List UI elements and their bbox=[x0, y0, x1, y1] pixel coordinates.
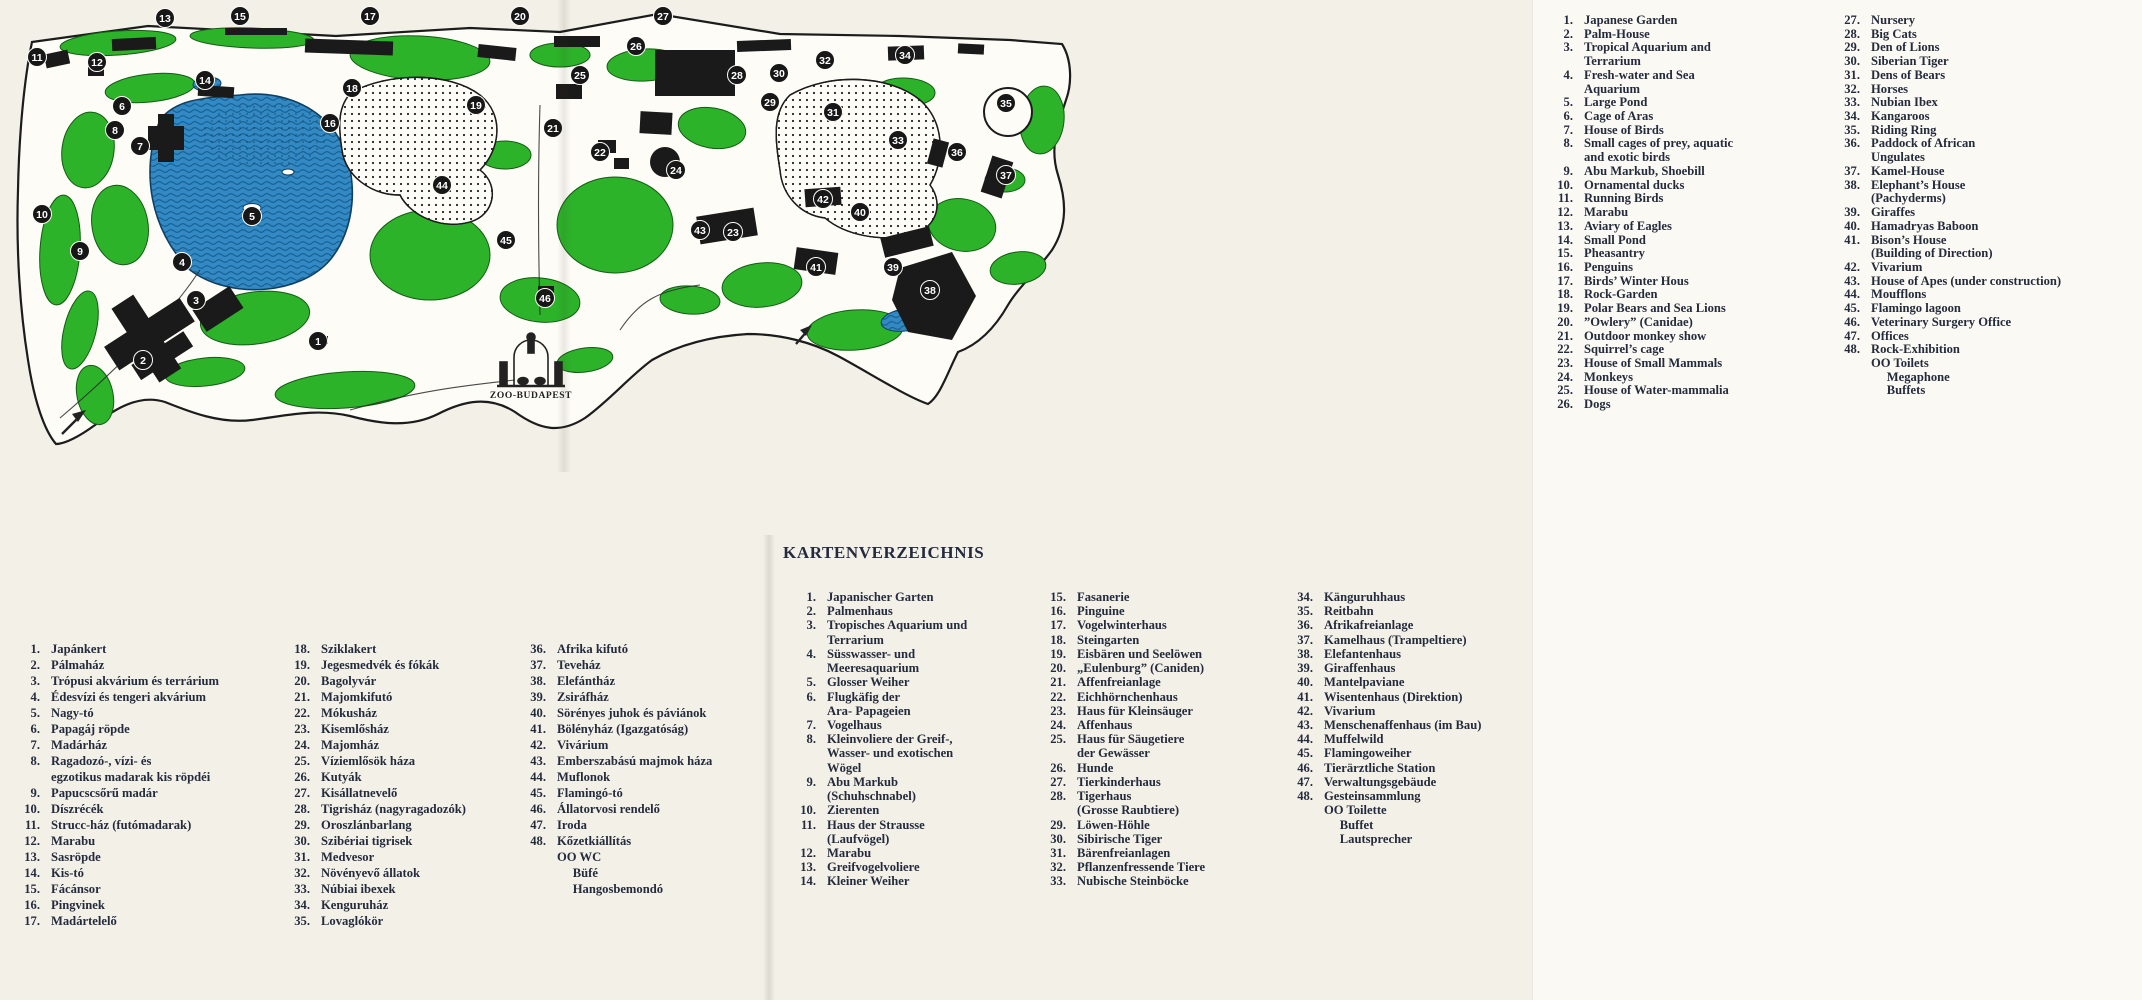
svg-text:22: 22 bbox=[594, 147, 606, 159]
legend-item-number: 16. bbox=[1038, 604, 1066, 618]
legend-item-number: 19. bbox=[1038, 647, 1066, 661]
legend-item: 18. Rock-Garden bbox=[1545, 288, 1821, 302]
legend-item: 15. Fácánsor bbox=[12, 882, 274, 898]
legend-item: 18. Sziklakert bbox=[282, 642, 514, 658]
map-marker-22: 22 bbox=[591, 143, 610, 162]
legend-item: 2. Palmenhaus bbox=[788, 604, 1026, 618]
legend-item-number: 36. bbox=[1285, 618, 1313, 632]
legend-item: 6. Flugkäfig der Ara- Papageien bbox=[788, 690, 1026, 718]
legend-item: 34. Kangaroos bbox=[1832, 110, 2132, 124]
legend-item: 42. Vivárium bbox=[518, 738, 760, 754]
map-marker-28: 28 bbox=[728, 66, 747, 85]
svg-text:28: 28 bbox=[731, 70, 743, 82]
legend-item: 39. Zsiráfház bbox=[518, 690, 760, 706]
legend-item-number: 23. bbox=[1038, 704, 1066, 718]
legend-item: 29. Löwen-Höhle bbox=[1038, 818, 1274, 832]
legend-item-number: 8. bbox=[788, 732, 816, 746]
legend-item-number: 34. bbox=[1285, 590, 1313, 604]
legend-item-number: 22. bbox=[1545, 343, 1573, 357]
legend-item: 25. Víziemlősök háza bbox=[282, 754, 514, 770]
legend-item: 9. Abu Markub (Schuhschnabel) bbox=[788, 775, 1026, 803]
legend-item: 15. Pheasantry bbox=[1545, 247, 1821, 261]
map-marker-11: 11 bbox=[28, 48, 47, 67]
legend-item-label: Kisállatnevelő bbox=[321, 786, 397, 802]
svg-text:21: 21 bbox=[547, 123, 559, 135]
legend-item-label: Big Cats bbox=[1871, 28, 1917, 42]
map-marker-30: 30 bbox=[770, 64, 789, 83]
legend-item-label: Pflanzenfressende Tiere bbox=[1077, 860, 1205, 874]
svg-text:33: 33 bbox=[892, 135, 904, 147]
legend-item-label: Cage of Aras bbox=[1584, 110, 1653, 124]
map-marker-26: 26 bbox=[627, 37, 646, 56]
legend-item-label: House of Small Mammals bbox=[1584, 357, 1722, 371]
legend-item-label: Kőzetkiállítás OO WC Büfé Hangosbemondó bbox=[557, 834, 663, 898]
legend-item: 36. Paddock of African Ungulates bbox=[1832, 137, 2132, 164]
legend-item-number: 26. bbox=[1038, 761, 1066, 775]
legend-item-label: Flamingoweiher bbox=[1324, 746, 1411, 760]
legend-item-number: 11. bbox=[788, 818, 816, 832]
legend-item-number: 20. bbox=[1545, 316, 1573, 330]
legend-item: 24. Monkeys bbox=[1545, 371, 1821, 385]
legend-item-number: 16. bbox=[12, 898, 40, 914]
legend-item-number: 7. bbox=[1545, 124, 1573, 138]
map-marker-12: 12 bbox=[88, 53, 107, 72]
legend-item: 30. Sibirische Tiger bbox=[1038, 832, 1274, 846]
legend-item: 23. Kisemlősház bbox=[282, 722, 514, 738]
legend-item-label: Flugkäfig der Ara- Papageien bbox=[827, 690, 911, 718]
legend-item: 31. Bärenfreianlagen bbox=[1038, 846, 1274, 860]
legend-item-label: Kamelhaus (Trampeltiere) bbox=[1324, 633, 1467, 647]
legend-item-label: Riding Ring bbox=[1871, 124, 1936, 138]
legend-item: 19. Jegesmedvék és fókák bbox=[282, 658, 514, 674]
svg-text:34: 34 bbox=[899, 50, 911, 62]
legend-item-label: Oroszlánbarlang bbox=[321, 818, 412, 834]
legend-de-col2: 15. Fasanerie 16. Pinguine 17. Vogelwint… bbox=[1038, 590, 1274, 889]
legend-item-number: 6. bbox=[1545, 110, 1573, 124]
legend-item: 29. Oroszlánbarlang bbox=[282, 818, 514, 834]
legend-item: 37. Kamel-House bbox=[1832, 165, 2132, 179]
legend-item-number: 28. bbox=[1832, 28, 1860, 42]
legend-item-number: 31. bbox=[1832, 69, 1860, 83]
svg-text:30: 30 bbox=[773, 68, 785, 80]
legend-item-label: Elephant’s House (Pachyderms) bbox=[1871, 179, 1965, 206]
map-marker-37: 37 bbox=[997, 166, 1016, 185]
legend-item-number: 40. bbox=[1285, 675, 1313, 689]
legend-item-number: 1. bbox=[788, 590, 816, 604]
legend-item-label: Fácánsor bbox=[51, 882, 101, 898]
map-marker-27: 27 bbox=[654, 7, 673, 26]
legend-item-label: Papagáj röpde bbox=[51, 722, 130, 738]
legend-item: 7. Madárház bbox=[12, 738, 274, 754]
map-marker-16: 16 bbox=[321, 114, 340, 133]
legend-item-number: 44. bbox=[518, 770, 546, 786]
legend-item-label: Ragadozó-, vízi- és egzotikus madarak ki… bbox=[51, 754, 210, 786]
map-marker-25: 25 bbox=[571, 66, 590, 85]
legend-item-number: 26. bbox=[282, 770, 310, 786]
legend-item-number: 15. bbox=[1038, 590, 1066, 604]
legend-item-number: 9. bbox=[1545, 165, 1573, 179]
legend-item-label: Majomkifutó bbox=[321, 690, 392, 706]
legend-item-number: 46. bbox=[1832, 316, 1860, 330]
legend-item-label: House of Water-mammalia bbox=[1584, 384, 1729, 398]
legend-item-number: 29. bbox=[1832, 41, 1860, 55]
legend-item-label: Víziemlősök háza bbox=[321, 754, 415, 770]
svg-text:35: 35 bbox=[1000, 98, 1012, 110]
legend-item-number: 12. bbox=[1545, 206, 1573, 220]
legend-item-number: 12. bbox=[788, 846, 816, 860]
legend-item-number: 30. bbox=[1038, 832, 1066, 846]
svg-text:38: 38 bbox=[924, 285, 936, 297]
legend-item-label: Pingvinek bbox=[51, 898, 105, 914]
legend-item-number: 6. bbox=[12, 722, 40, 738]
svg-text:11: 11 bbox=[31, 52, 42, 64]
legend-item: 38. Elefantenhaus bbox=[1285, 647, 1531, 661]
map-marker-40: 40 bbox=[851, 203, 870, 222]
legend-item: 1. Japanese Garden bbox=[1545, 14, 1821, 28]
legend-item-label: Tigrisház (nagyragadozók) bbox=[321, 802, 466, 818]
map-marker-9: 9 bbox=[71, 242, 90, 261]
legend-item: 12. Marabu bbox=[1545, 206, 1821, 220]
legend-item-number: 32. bbox=[1038, 860, 1066, 874]
page-fold-crease bbox=[763, 535, 775, 1000]
legend-item: 30. Siberian Tiger bbox=[1832, 55, 2132, 69]
legend-item-number: 4. bbox=[788, 647, 816, 661]
map-marker-7: 7 bbox=[131, 137, 150, 156]
legend-item: 7. Vogelhaus bbox=[788, 718, 1026, 732]
svg-text:40: 40 bbox=[854, 207, 866, 219]
legend-item-number: 21. bbox=[1545, 330, 1573, 344]
legend-item-number: 24. bbox=[282, 738, 310, 754]
svg-text:8: 8 bbox=[112, 125, 118, 137]
legend-item-number: 15. bbox=[1545, 247, 1573, 261]
legend-item: 43. House of Apes (under construction) bbox=[1832, 275, 2132, 289]
legend-item: 23. House of Small Mammals bbox=[1545, 357, 1821, 371]
legend-item: 33. Núbiai ibexek bbox=[282, 882, 514, 898]
legend-item-number: 34. bbox=[282, 898, 310, 914]
legend-item-label: Giraffenhaus bbox=[1324, 661, 1395, 675]
legend-hu-col2: 18. Sziklakert 19. Jegesmedvék és fókák … bbox=[282, 642, 514, 930]
legend-item: 14. Kis-tó bbox=[12, 866, 274, 882]
legend-item-label: Vivárium bbox=[557, 738, 608, 754]
legend-item: 19. Polar Bears and Sea Lions bbox=[1545, 302, 1821, 316]
svg-text:7: 7 bbox=[137, 141, 143, 153]
legend-item: 5. Nagy-tó bbox=[12, 706, 274, 722]
legend-item: 42. Vivarium bbox=[1832, 261, 2132, 275]
legend-item-number: 26. bbox=[1545, 398, 1573, 412]
legend-item: 44. Muffelwild bbox=[1285, 732, 1531, 746]
map-marker-36: 36 bbox=[948, 143, 967, 162]
legend-en-col2: 27. Nursery 28. Big Cats 29. Den of Lion… bbox=[1832, 14, 2132, 398]
legend-item-label: Känguruhhaus bbox=[1324, 590, 1405, 604]
legend-item: 4. Édesvízi és tengeri akvárium bbox=[12, 690, 274, 706]
map-marker-21: 21 bbox=[544, 119, 563, 138]
legend-item-number: 11. bbox=[12, 818, 40, 834]
svg-text:9: 9 bbox=[77, 246, 83, 258]
svg-text:32: 32 bbox=[819, 55, 831, 67]
legend-item: 20. Bagolyvár bbox=[282, 674, 514, 690]
legend-item: 37. Kamelhaus (Trampeltiere) bbox=[1285, 633, 1531, 647]
map-marker-33: 33 bbox=[889, 131, 908, 150]
legend-item-number: 43. bbox=[1285, 718, 1313, 732]
svg-text:25: 25 bbox=[574, 70, 586, 82]
legend-item-label: Muflonok bbox=[557, 770, 610, 786]
legend-item-number: 27. bbox=[282, 786, 310, 802]
map-marker-4: 4 bbox=[173, 253, 192, 272]
map-marker-18: 18 bbox=[343, 79, 362, 98]
legend-item-label: Marabu bbox=[827, 846, 871, 860]
legend-item-number: 39. bbox=[1832, 206, 1860, 220]
legend-item-number: 22. bbox=[282, 706, 310, 722]
map-marker-24: 24 bbox=[667, 161, 686, 180]
legend-item-number: 23. bbox=[1545, 357, 1573, 371]
legend-item-number: 27. bbox=[1038, 775, 1066, 789]
legend-item: 20. ”Owlery” (Canidae) bbox=[1545, 316, 1821, 330]
legend-item-number: 42. bbox=[1285, 704, 1313, 718]
legend-item-number: 30. bbox=[1832, 55, 1860, 69]
legend-item-number: 47. bbox=[518, 818, 546, 834]
svg-text:42: 42 bbox=[817, 194, 829, 206]
legend-item-label: Szibériai tigrisek bbox=[321, 834, 412, 850]
legend-item-label: House of Apes (under construction) bbox=[1871, 275, 2061, 289]
legend-item-label: Fresh-water and Sea Aquarium bbox=[1584, 69, 1695, 96]
legend-item-number: 21. bbox=[1038, 675, 1066, 689]
legend-item: 46. Állatorvosi rendelő bbox=[518, 802, 760, 818]
legend-item-label: Bagolyvár bbox=[321, 674, 376, 690]
legend-item-label: Eichhörnchenhaus bbox=[1077, 690, 1178, 704]
legend-item-number: 34. bbox=[1832, 110, 1860, 124]
legend-item: 13. Sasröpde bbox=[12, 850, 274, 866]
map-marker-35: 35 bbox=[997, 94, 1016, 113]
legend-item: 41. Wisentenhaus (Direktion) bbox=[1285, 690, 1531, 704]
scanned-zoo-map-page: ZOO-BUDAPEST 131517202726252830323435293… bbox=[0, 0, 2142, 1000]
legend-hu-col1: 1. Japánkert 2. Pálmaház 3. Trópusi akvá… bbox=[12, 642, 274, 930]
map-marker-38: 38 bbox=[921, 281, 940, 300]
legend-item-label: Nubische Steinböcke bbox=[1077, 874, 1189, 888]
legend-item-label: Wisentenhaus (Direktion) bbox=[1324, 690, 1462, 704]
legend-item: 3. Tropisches Aquarium und Terrarium bbox=[788, 618, 1026, 646]
legend-item-label: Süsswasser- und Meeresaquarium bbox=[827, 647, 919, 675]
legend-item-label: Édesvízi és tengeri akvárium bbox=[51, 690, 206, 706]
legend-item-label: Flamingó-tó bbox=[557, 786, 623, 802]
map-marker-31: 31 bbox=[824, 103, 843, 122]
legend-item-number: 7. bbox=[12, 738, 40, 754]
legend-item-label: Vogelwinterhaus bbox=[1077, 618, 1167, 632]
svg-text:39: 39 bbox=[887, 262, 899, 274]
svg-text:14: 14 bbox=[199, 75, 211, 87]
svg-text:29: 29 bbox=[764, 97, 776, 109]
legend-item: 32. Pflanzenfressende Tiere bbox=[1038, 860, 1274, 874]
map-marker-2: 2 bbox=[134, 351, 153, 370]
legend-item-label: Reitbahn bbox=[1324, 604, 1374, 618]
legend-item-label: Pálmaház bbox=[51, 658, 104, 674]
legend-item-label: House of Birds bbox=[1584, 124, 1664, 138]
svg-text:45: 45 bbox=[500, 235, 512, 247]
legend-item-number: 42. bbox=[1832, 261, 1860, 275]
legend-item: 25. Haus für Säugetiere der Gewässer bbox=[1038, 732, 1274, 760]
map-marker-8: 8 bbox=[106, 121, 125, 140]
map-logo: ZOO-BUDAPEST bbox=[490, 391, 572, 401]
legend-item-label: Kleinvoliere der Greif-, Wasser- und exo… bbox=[827, 732, 953, 775]
legend-item-label: Haus für Kleinsäuger bbox=[1077, 704, 1193, 718]
legend-item-number: 10. bbox=[1545, 179, 1573, 193]
legend-item: 27. Nursery bbox=[1832, 14, 2132, 28]
legend-item-number: 14. bbox=[12, 866, 40, 882]
legend-item-number: 23. bbox=[282, 722, 310, 738]
legend-de-col1: 1. Japanischer Garten 2. Palmenhaus 3. T… bbox=[788, 590, 1026, 889]
legend-item-number: 1. bbox=[12, 642, 40, 658]
legend-item: 47. Iroda bbox=[518, 818, 760, 834]
legend-item-number: 31. bbox=[1038, 846, 1066, 860]
map-marker-10: 10 bbox=[33, 205, 52, 224]
svg-text:17: 17 bbox=[364, 11, 376, 23]
legend-item-label: Rock-Garden bbox=[1584, 288, 1657, 302]
legend-item-number: 17. bbox=[1545, 275, 1573, 289]
legend-item-number: 1. bbox=[1545, 14, 1573, 28]
legend-item: 38. Elefántház bbox=[518, 674, 760, 690]
legend-item-number: 20. bbox=[282, 674, 310, 690]
legend-item-number: 45. bbox=[1285, 746, 1313, 760]
legend-item-label: Hunde bbox=[1077, 761, 1113, 775]
legend-item: 9. Abu Markub, Shoebill bbox=[1545, 165, 1821, 179]
legend-item-label: Tigerhaus (Grosse Raubtiere) bbox=[1077, 789, 1179, 817]
legend-item: 20. „Eulenburg” (Caniden) bbox=[1038, 661, 1274, 675]
legend-item-label: Mókusház bbox=[321, 706, 377, 722]
legend-item-label: Verwaltungsgebäude bbox=[1324, 775, 1436, 789]
legend-item-number: 8. bbox=[12, 754, 40, 770]
legend-item-number: 15. bbox=[12, 882, 40, 898]
legend-item: 7. House of Birds bbox=[1545, 124, 1821, 138]
legend-item-number: 48. bbox=[1832, 343, 1860, 357]
legend-item-label: Marabu bbox=[51, 834, 95, 850]
svg-text:23: 23 bbox=[727, 227, 739, 239]
legend-item-label: Moufflons bbox=[1871, 288, 1926, 302]
svg-text:24: 24 bbox=[670, 165, 682, 177]
legend-item-label: Abu Markub, Shoebill bbox=[1584, 165, 1705, 179]
legend-item: 48. Gesteinsammlung OO Toilette Buffet L… bbox=[1285, 789, 1531, 846]
legend-item-label: ”Owlery” (Canidae) bbox=[1584, 316, 1693, 330]
legend-item-label: Pheasantry bbox=[1584, 247, 1645, 261]
legend-item-label: Affenfreianlage bbox=[1077, 675, 1161, 689]
legend-item-number: 9. bbox=[12, 786, 40, 802]
legend-item-label: Squirrel’s cage bbox=[1584, 343, 1664, 357]
legend-item-label: Rock-Exhibition OO Toilets Megaphone Buf… bbox=[1871, 343, 1960, 398]
legend-item-number: 2. bbox=[1545, 28, 1573, 42]
map-marker-1: 1 bbox=[309, 332, 328, 351]
legend-item-label: Nubian Ibex bbox=[1871, 96, 1938, 110]
legend-item-number: 17. bbox=[1038, 618, 1066, 632]
legend-item: 16. Pinguine bbox=[1038, 604, 1274, 618]
legend-item: 3. Trópusi akvárium és terrárium bbox=[12, 674, 274, 690]
legend-de-col3: 34. Känguruhhaus 35. Reitbahn 36. Afrika… bbox=[1285, 590, 1531, 846]
legend-item: 33. Nubische Steinböcke bbox=[1038, 874, 1274, 888]
legend-item: 6. Cage of Aras bbox=[1545, 110, 1821, 124]
map-marker-45: 45 bbox=[497, 231, 516, 250]
legend-item: 46. Tierärztliche Station bbox=[1285, 761, 1531, 775]
legend-item-number: 19. bbox=[1545, 302, 1573, 316]
legend-item-label: Hamadryas Baboon bbox=[1871, 220, 1978, 234]
legend-item: 26. Hunde bbox=[1038, 761, 1274, 775]
map-marker-23: 23 bbox=[724, 223, 743, 242]
legend-item-label: Polar Bears and Sea Lions bbox=[1584, 302, 1726, 316]
pond-texture bbox=[200, 103, 330, 167]
legend-item: 13. Greifvogelvoliere bbox=[788, 860, 1026, 874]
legend-item: 2. Palm-House bbox=[1545, 28, 1821, 42]
legend-item: 41. Bölényház (Igazgatóság) bbox=[518, 722, 760, 738]
map-marker-3: 3 bbox=[187, 291, 206, 310]
legend-item: 5. Large Pond bbox=[1545, 96, 1821, 110]
legend-item-number: 32. bbox=[1832, 83, 1860, 97]
legend-item-number: 17. bbox=[12, 914, 40, 930]
svg-text:19: 19 bbox=[470, 100, 482, 112]
legend-item-label: Haus für Säugetiere der Gewässer bbox=[1077, 732, 1184, 760]
legend-item-number: 7. bbox=[788, 718, 816, 732]
legend-item-label: Paddock of African Ungulates bbox=[1871, 137, 1975, 164]
legend-item-label: Nursery bbox=[1871, 14, 1915, 28]
legend-item: 43. Emberszabású majmok háza bbox=[518, 754, 760, 770]
legend-item: 3. Tropical Aquarium and Terrarium bbox=[1545, 41, 1821, 68]
legend-item-number: 38. bbox=[1832, 179, 1860, 193]
legend-item-label: Ornamental ducks bbox=[1584, 179, 1684, 193]
legend-item: 15. Fasanerie bbox=[1038, 590, 1274, 604]
legend-item: 45. Flamingo lagoon bbox=[1832, 302, 2132, 316]
legend-item-label: Tropical Aquarium and Terrarium bbox=[1584, 41, 1711, 68]
legend-item: 40. Mantelpaviane bbox=[1285, 675, 1531, 689]
legend-item: 17. Birds’ Winter Hous bbox=[1545, 275, 1821, 289]
legend-item-number: 9. bbox=[788, 775, 816, 789]
legend-item: 41. Bison’s House (Building of Direction… bbox=[1832, 234, 2132, 261]
legend-item: 11. Strucc-ház (futómadarak) bbox=[12, 818, 274, 834]
legend-item: 43. Menschenaffenhaus (im Bau) bbox=[1285, 718, 1531, 732]
legend-item-number: 41. bbox=[518, 722, 546, 738]
legend-item-label: Növényevő állatok bbox=[321, 866, 420, 882]
legend-item: 32. Növényevő állatok bbox=[282, 866, 514, 882]
legend-item-label: Madártelelő bbox=[51, 914, 117, 930]
legend-item-label: Menschenaffenhaus (im Bau) bbox=[1324, 718, 1481, 732]
legend-item-number: 24. bbox=[1038, 718, 1066, 732]
legend-item: 44. Muflonok bbox=[518, 770, 760, 786]
legend-item-number: 45. bbox=[518, 786, 546, 802]
legend-item-number: 4. bbox=[1545, 69, 1573, 83]
legend-item: 44. Moufflons bbox=[1832, 288, 2132, 302]
legend-item: 9. Papucscsőrű madár bbox=[12, 786, 274, 802]
legend-item-label: Small Pond bbox=[1584, 234, 1646, 248]
legend-item-number: 48. bbox=[1285, 789, 1313, 803]
legend-item-number: 3. bbox=[788, 618, 816, 632]
legend-item: 14. Kleiner Weiher bbox=[788, 874, 1026, 888]
svg-text:3: 3 bbox=[193, 295, 199, 307]
legend-item-label: Trópusi akvárium és terrárium bbox=[51, 674, 219, 690]
legend-item: 32. Horses bbox=[1832, 83, 2132, 97]
legend-item: 11. Haus der Strausse (Laufvögel) bbox=[788, 818, 1026, 846]
legend-item-label: Affenhaus bbox=[1077, 718, 1132, 732]
legend-item-number: 47. bbox=[1285, 775, 1313, 789]
legend-item: 36. Afrika kifutó bbox=[518, 642, 760, 658]
legend-item-label: Állatorvosi rendelő bbox=[557, 802, 660, 818]
legend-item: 11. Running Birds bbox=[1545, 192, 1821, 206]
legend-item-label: Tierkinderhaus bbox=[1077, 775, 1161, 789]
legend-item-number: 28. bbox=[1038, 789, 1066, 803]
map-marker-39: 39 bbox=[884, 258, 903, 277]
svg-text:13: 13 bbox=[159, 13, 171, 25]
legend-item-number: 37. bbox=[1285, 633, 1313, 647]
legend-item-number: 43. bbox=[1832, 275, 1860, 289]
legend-item-number: 30. bbox=[282, 834, 310, 850]
legend-item: 35. Riding Ring bbox=[1832, 124, 2132, 138]
svg-text:12: 12 bbox=[91, 57, 103, 69]
legend-item-label: Outdoor monkey show bbox=[1584, 330, 1706, 344]
legend-item-label: Greifvogelvoliere bbox=[827, 860, 920, 874]
legend-item-number: 38. bbox=[518, 674, 546, 690]
